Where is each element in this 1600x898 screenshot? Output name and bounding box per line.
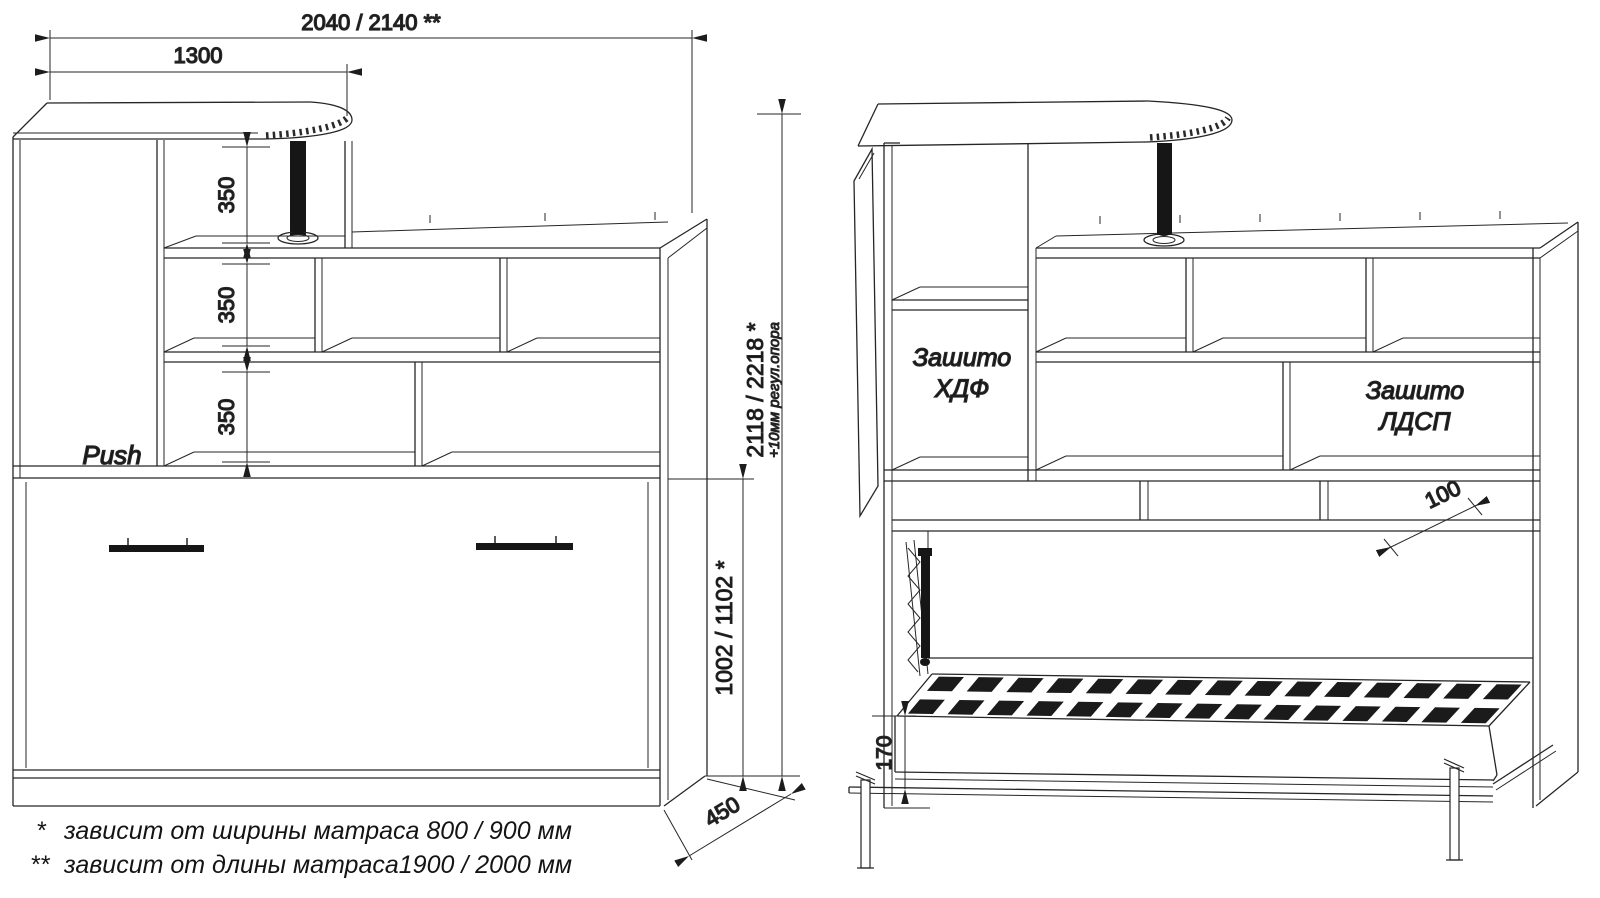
dimension-total-width: 2040 / 2140 ** [301,10,441,35]
desk-edge-banding-open [1150,118,1228,138]
desk-edge-banding [266,118,347,136]
footnotes: * зависит от ширины матраса 800 / 900 мм… [30,817,572,879]
desk-top-open [858,101,1232,146]
hdf-panel-label-line2: ХДФ [934,375,989,403]
bed-leg-left [861,780,870,868]
gas-lift-bracket [918,548,932,556]
handle-left [109,545,204,552]
closed-view-drawing: 2040 / 2140 ** 1300 350 350 350 Push 450 [13,10,800,860]
footnote-2-marker: ** [30,851,51,879]
support-foot-note: +10мм регул.опора [766,322,783,458]
furniture-technical-drawing: 2040 / 2140 ** 1300 350 350 350 Push 450… [0,0,1600,898]
dimension-desk-width: 1300 [174,43,223,68]
door-push-label: Push [82,440,141,470]
open-view-drawing: Зашито ХДФ Зашито ЛДСП 100 170 [849,101,1578,868]
dimension-bed-section-height: 1002 / 1102 * [711,560,737,695]
open-door-panel [854,149,878,516]
bed-panel-handles [109,536,573,552]
fold-mechanism [906,540,932,676]
height-dimensions: 1002 / 1102 * 2118 / 2218 * +10мм регул.… [668,114,801,776]
dimension-total-height: 2118 / 2218 * [742,322,768,457]
ldsp-panel-label-line2: ЛДСП [1378,408,1452,436]
dimension-bed-frame-height: 170 [873,735,896,770]
footnote-1-marker: * [36,817,47,845]
footnote-1-text: зависит от ширины матраса 800 / 900 мм [63,817,572,845]
desk-support-pole [278,141,318,244]
technical-drawing-page: 2040 / 2140 ** 1300 350 350 350 Push 450… [0,0,1600,898]
desk-top-closed [13,102,352,139]
dimension-shelf-3: 350 [214,399,239,436]
footnote-2-text: зависит от длины матраса1900 / 2000 мм [63,851,572,879]
closed-cabinet-body [13,137,800,806]
mattress-slats [908,677,1522,724]
desk-support-pole-open [1144,143,1184,246]
gas-lift-cylinder [921,556,930,658]
dimension-depth: 450 [700,791,744,831]
handle-right [476,543,573,550]
open-cabinet-body [884,143,1578,808]
dimension-shelf-1: 350 [214,177,239,214]
hdf-panel-label-line1: Зашито [913,344,1011,372]
dimension-shelf-2: 350 [214,287,239,324]
bed-leg-right [1450,768,1459,860]
ldsp-panel-label-line1: Зашито [1366,377,1464,405]
open-view-dimensions [872,498,1488,789]
